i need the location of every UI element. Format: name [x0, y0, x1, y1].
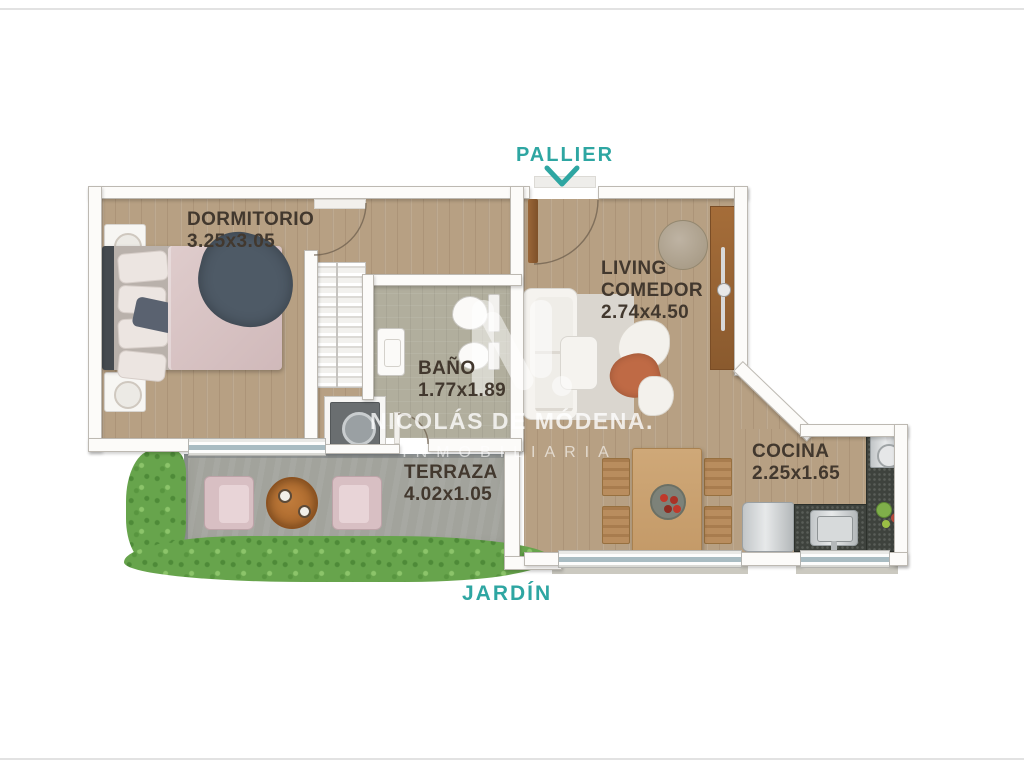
room-dims: 1.77x1.89	[418, 380, 506, 402]
bedroom-window	[188, 438, 326, 456]
watermark-brand: NICOLÁS DE MÓDENA.	[370, 408, 650, 435]
wood-panel-door	[710, 206, 736, 370]
garden-grass-bottom	[124, 536, 550, 582]
room-name-line1: LIVING	[601, 258, 703, 280]
room-dims: 2.74x4.50	[601, 302, 703, 324]
wall-bottom-b	[740, 552, 802, 566]
door-knob-icon	[717, 283, 731, 297]
wall-top-left	[88, 186, 530, 199]
room-dims: 2.25x1.65	[752, 463, 840, 485]
room-name: DORMITORIO	[187, 209, 314, 231]
dining-chair	[602, 506, 630, 544]
room-label-cocina: COCINA 2.25x1.65	[752, 441, 840, 485]
wall-left	[88, 186, 102, 452]
dining-chair	[704, 506, 732, 544]
wall-bottom-a	[524, 552, 562, 566]
frame-bottom-line	[0, 758, 1024, 760]
jardin-label: JARDÍN	[462, 582, 552, 606]
armchair-cushion	[219, 485, 249, 523]
entry-door-leaf	[528, 199, 538, 263]
pillow	[117, 250, 169, 284]
sink-bowl-icon	[817, 516, 853, 542]
room-label-living: LIVING COMEDOR 2.74x4.50	[601, 258, 703, 324]
bedroom-door-leaf	[314, 199, 366, 209]
wall-bedroom-bottom	[88, 438, 190, 452]
pillow	[117, 350, 168, 383]
terrace-armchair-right	[332, 476, 382, 530]
wall-bath-left	[362, 274, 374, 400]
floor-plan-canvas: NICOLÁS DE MÓDENA. INMOBILIARIA PALLIER …	[0, 0, 1024, 768]
living-window	[558, 550, 742, 568]
room-dims: 4.02x1.05	[404, 484, 498, 506]
armchair-cushion	[339, 485, 369, 523]
watermark-logo-dot	[552, 376, 572, 396]
room-name-line2: COMEDOR	[601, 280, 703, 302]
wall-kitchen-top	[800, 424, 908, 437]
kitchen-window	[800, 550, 890, 568]
room-name: BAÑO	[418, 358, 506, 380]
vegetables-icon	[876, 502, 892, 518]
bed-headboard	[102, 246, 114, 370]
fruit-icon	[660, 494, 668, 502]
wall-bedroom-right	[304, 250, 318, 452]
lamp-icon	[114, 381, 142, 409]
watermark-logo-bar	[530, 300, 552, 378]
cup-icon	[278, 489, 292, 503]
room-label-terraza: TERRAZA 4.02x1.05	[404, 462, 498, 506]
entry-threshold	[534, 176, 596, 188]
wall-top-right	[598, 186, 748, 199]
wardrobe-divider	[336, 263, 338, 387]
wall-kitchen-right	[894, 424, 908, 566]
room-dims: 3.25x3.05	[187, 231, 314, 253]
dining-chair	[704, 458, 732, 496]
room-name: TERRAZA	[404, 462, 498, 484]
fridge	[742, 502, 794, 552]
bathroom-vanity	[377, 328, 405, 376]
room-label-bano: BAÑO 1.77x1.89	[418, 358, 506, 402]
terrace-armchair-left	[204, 476, 254, 530]
frame-top-line	[0, 8, 1024, 10]
sink-basin-icon	[384, 339, 401, 367]
wall-bath-top	[362, 274, 522, 286]
wall-living-right	[734, 186, 748, 376]
kitchen-sink	[810, 510, 858, 546]
dining-chair	[602, 458, 630, 496]
terrace-round-table	[266, 477, 318, 529]
cup-icon	[298, 505, 311, 518]
room-name: COCINA	[752, 441, 840, 463]
watermark-tagline: INMOBILIARIA	[370, 444, 650, 462]
pallier-label: PALLIER	[505, 144, 625, 167]
wall-bottom-c	[888, 552, 908, 566]
room-label-dormitorio: DORMITORIO 3.25x3.05	[187, 209, 314, 253]
fruit-bowl	[650, 484, 686, 520]
